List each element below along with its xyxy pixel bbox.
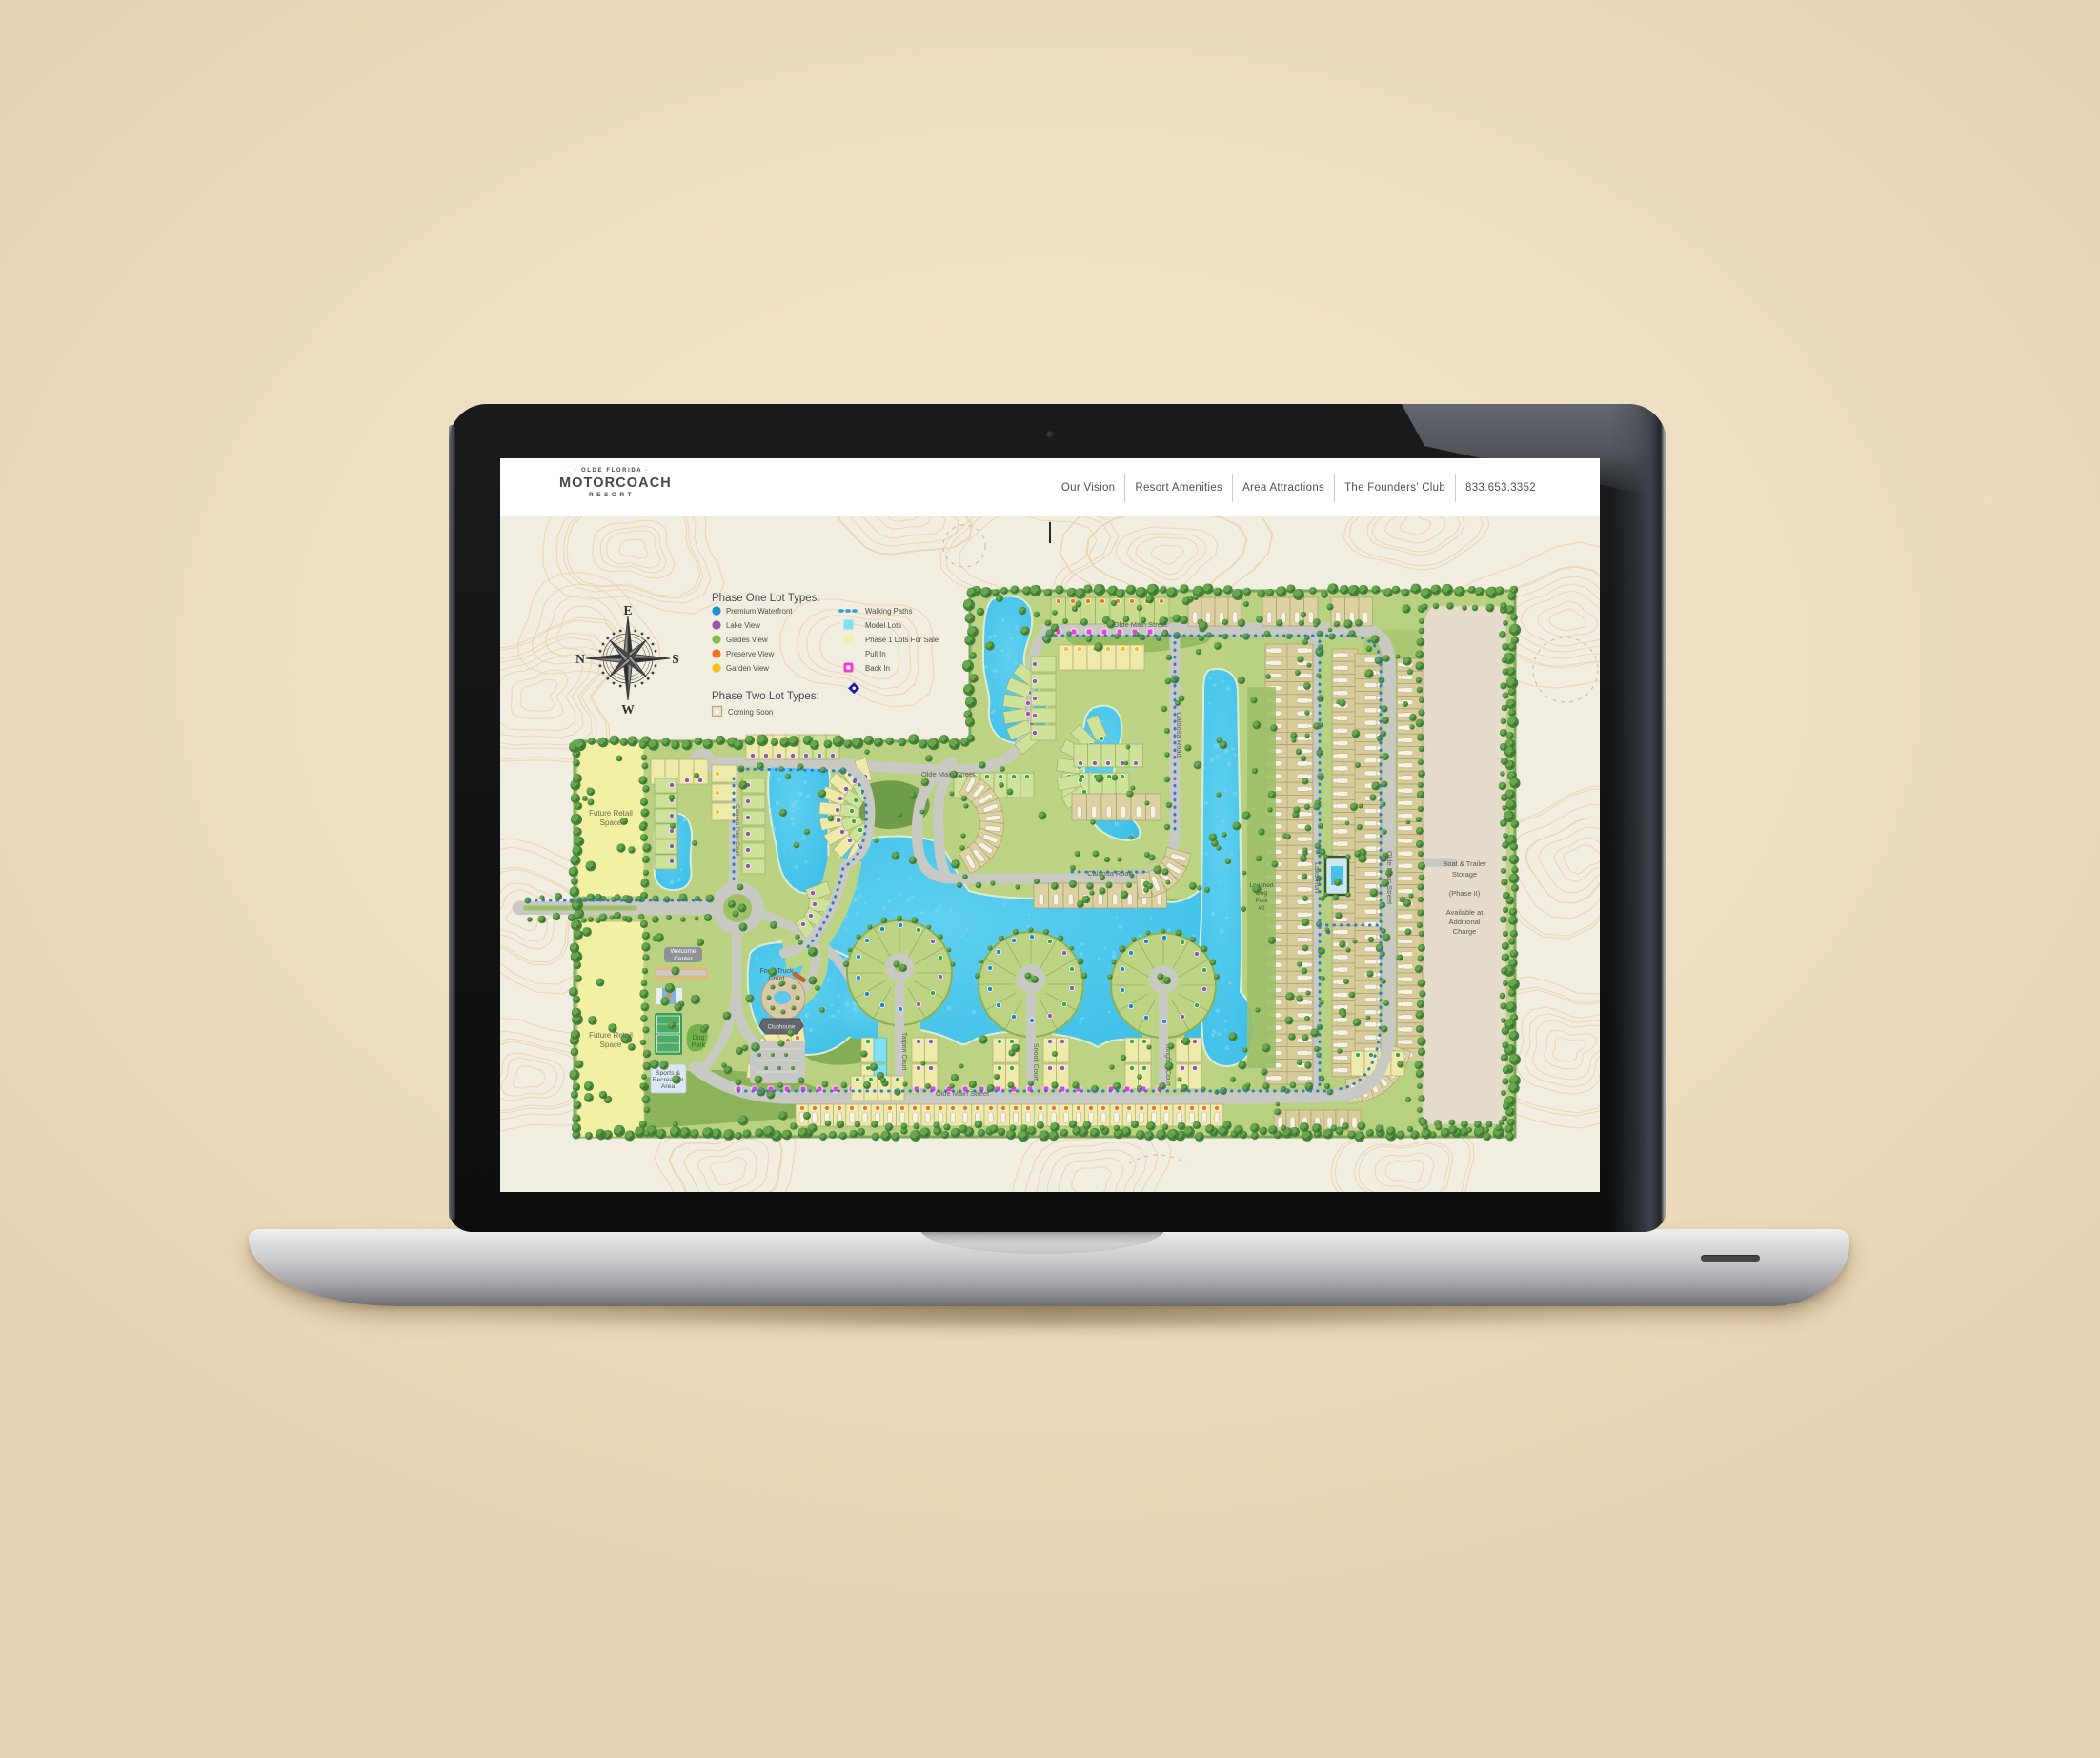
svg-text:Space: Space: [600, 818, 622, 827]
svg-text:Charge: Charge: [1453, 927, 1477, 936]
svg-text:Coming Soon: Coming Soon: [728, 708, 773, 717]
svg-text:Caloosa Road: Caloosa Road: [1175, 712, 1183, 758]
svg-text:Phase Two Lot Types:: Phase Two Lot Types:: [712, 691, 819, 702]
svg-text:Model Lots: Model Lots: [865, 621, 901, 630]
svg-text:Garden View: Garden View: [726, 664, 769, 673]
svg-text:#2: #2: [1258, 905, 1265, 912]
svg-text:Additional: Additional: [1449, 918, 1481, 926]
svg-text:E: E: [623, 603, 632, 617]
svg-text:Olde Main Street: Olde Main Street: [921, 770, 976, 778]
svg-text:Center: Center: [674, 956, 693, 962]
svg-text:Olde Main Street: Olde Main Street: [1385, 851, 1394, 905]
svg-text:Glades View: Glades View: [726, 636, 768, 644]
svg-text:Court: Court: [768, 976, 784, 982]
svg-text:Lake Run: Lake Run: [1313, 862, 1322, 893]
svg-text:Space: Space: [600, 1041, 622, 1049]
svg-text:Lake View: Lake View: [726, 621, 760, 630]
svg-text:Phase 1 Lots For Sale: Phase 1 Lots For Sale: [865, 636, 939, 644]
svg-text:Caloosa Palm Court: Caloosa Palm Court: [734, 804, 739, 856]
svg-text:Future Retail: Future Retail: [589, 1031, 633, 1040]
svg-text:Phase One Lot Types:: Phase One Lot Types:: [712, 593, 820, 604]
svg-text:Olde Main Street: Olde Main Street: [936, 1089, 990, 1098]
svg-text:Snook Court: Snook Court: [1032, 1043, 1039, 1081]
svg-text:Tarpon Court: Tarpon Court: [900, 1032, 907, 1071]
svg-text:Caloosa Road: Caloosa Road: [1087, 869, 1133, 878]
svg-text:W: W: [621, 702, 635, 717]
svg-text:Premium Waterfront: Premium Waterfront: [726, 607, 793, 616]
svg-text:Back In: Back In: [865, 664, 890, 673]
svg-text:Preserve View: Preserve View: [726, 650, 774, 658]
svg-text:Available at: Available at: [1446, 908, 1484, 917]
svg-text:Welcome: Welcome: [671, 948, 697, 955]
svg-text:Walking Paths: Walking Paths: [865, 607, 913, 616]
svg-text:S: S: [672, 652, 679, 666]
svg-text:N: N: [575, 652, 585, 666]
svg-text:Park: Park: [1255, 898, 1268, 904]
svg-text:Boat & Trailer: Boat & Trailer: [1443, 859, 1486, 868]
svg-text:Area: Area: [661, 1083, 676, 1090]
svg-text:(Phase II): (Phase II): [1449, 889, 1481, 898]
svg-text:Future Retail: Future Retail: [589, 809, 633, 818]
svg-text:Pull In: Pull In: [865, 650, 886, 658]
svg-text:Park: Park: [692, 1042, 706, 1049]
svg-text:Storage: Storage: [1452, 870, 1477, 879]
svg-text:Olde Main Street: Olde Main Street: [1114, 620, 1168, 629]
svg-text:Dog: Dog: [693, 1035, 705, 1041]
